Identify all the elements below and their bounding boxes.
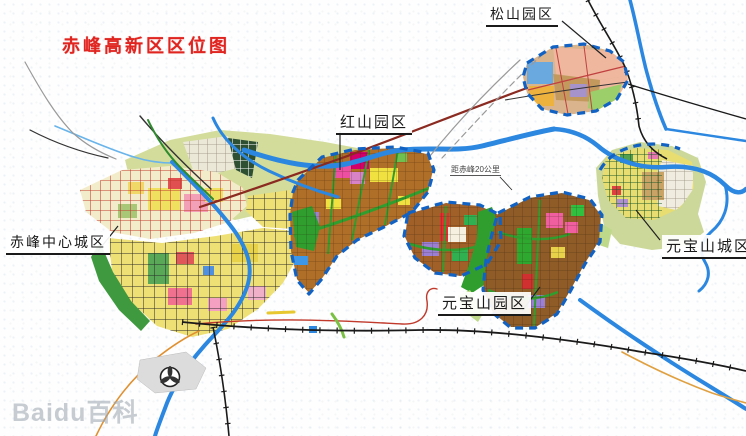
leader-distance-note bbox=[500, 177, 512, 190]
old-town-red-grid bbox=[80, 166, 247, 239]
road-yellow-segment bbox=[268, 312, 294, 313]
railway-main bbox=[182, 322, 746, 371]
railway-main-ticks bbox=[182, 322, 746, 371]
lake bbox=[294, 256, 308, 265]
label-hongshan-park: 红山园区 bbox=[336, 111, 412, 135]
river-east-stream bbox=[666, 129, 746, 141]
page-title: 赤峰高新区区位图 bbox=[62, 32, 230, 58]
road-northwest-2 bbox=[30, 130, 108, 158]
map-canvas: 赤峰高新区区位图 松山园区 红山园区 赤峰中心城区 元宝山园区 元宝山城区 距赤… bbox=[0, 0, 746, 436]
road-green-segment bbox=[332, 314, 344, 337]
distance-note: 距赤峰20公里 bbox=[450, 164, 501, 176]
map-graphic bbox=[0, 0, 746, 436]
label-yuanbaoshan-park: 元宝山园区 bbox=[438, 292, 531, 316]
boundary-northwest bbox=[25, 62, 116, 159]
label-chifeng-central-city: 赤峰中心城区 bbox=[6, 232, 110, 255]
label-songshan-park: 松山园区 bbox=[486, 4, 558, 27]
river-northeast-branch bbox=[630, 0, 666, 129]
watermark: Baidu百科 bbox=[12, 393, 138, 429]
railway-east bbox=[628, 84, 746, 119]
label-yuanbaoshan-city: 元宝山城区 bbox=[662, 235, 746, 259]
